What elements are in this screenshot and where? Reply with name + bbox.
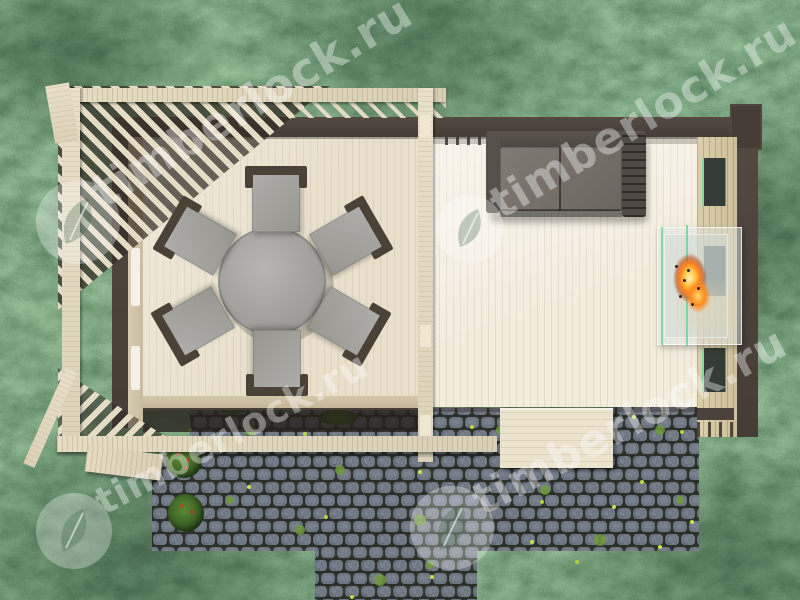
flame-tongue [685,279,711,313]
bush [168,494,204,532]
embers [675,265,678,268]
divider-beam [418,88,433,462]
trim-bench [131,248,140,306]
chair-frame [245,166,253,188]
chair-frame [246,374,254,396]
chair-frame [247,166,305,175]
trim-bench [131,346,140,390]
glass-edge-green [661,227,663,345]
entry-step-teeth [697,422,737,437]
divider-joints [420,115,431,137]
dining-chair [249,170,303,234]
chair-frame [299,166,307,188]
glass-fireplace [655,225,745,347]
chair-cushion [252,174,300,232]
garden-house-render: timberlock.ru timberlock.ru timberlock.r… [0,0,800,600]
slot-window [702,158,726,206]
